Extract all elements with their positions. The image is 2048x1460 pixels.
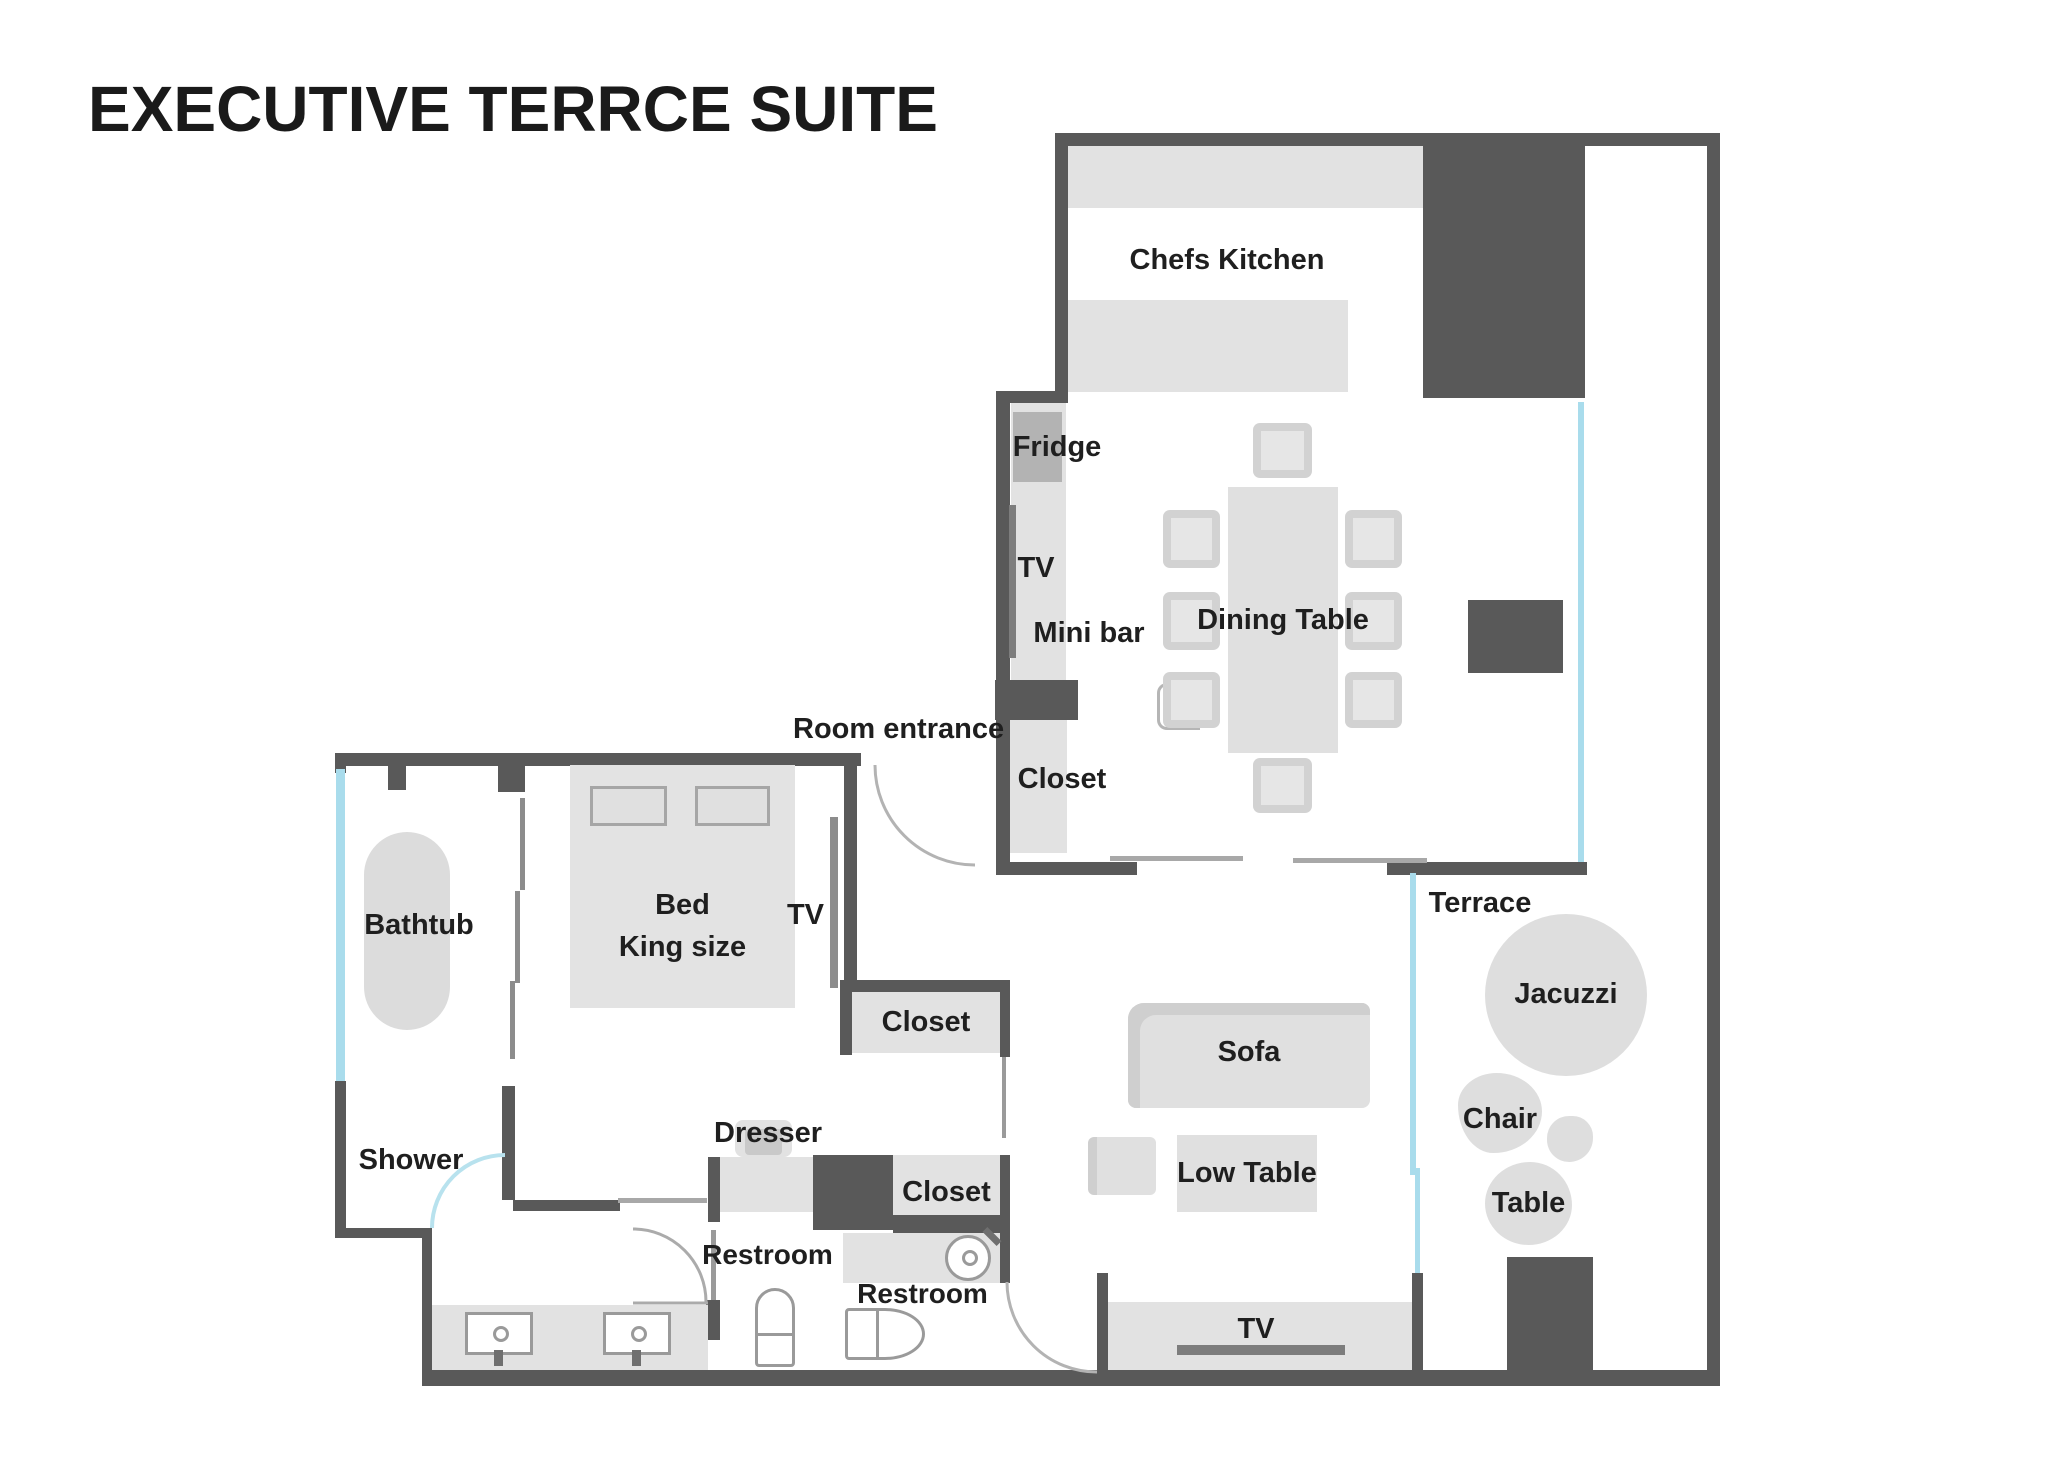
- shower-label: Shower: [355, 1145, 467, 1177]
- bed-label: Bed: [570, 890, 795, 922]
- room-entrance-label: Room entrance: [793, 714, 993, 746]
- low-table-label: Low Table: [1167, 1158, 1327, 1190]
- entry-closet-label: Closet: [1012, 764, 1112, 796]
- tv-bedroom-label: TV: [780, 900, 824, 932]
- chair-label: Chair: [1456, 1104, 1544, 1136]
- bathtub-label: Bathtub: [363, 910, 475, 942]
- table-label: Table: [1485, 1188, 1572, 1220]
- door-swing-arcs: [0, 0, 2048, 1460]
- bed-size-label: King size: [570, 932, 795, 964]
- bath-door-arc: [633, 1229, 708, 1303]
- tv-dining-label: TV: [1016, 553, 1056, 585]
- entrance-door-arc: [875, 765, 975, 865]
- dresser-label: Dresser: [714, 1118, 819, 1150]
- jacuzzi-label: Jacuzzi: [1485, 979, 1647, 1011]
- dining-table-label: Dining Table: [1183, 605, 1383, 637]
- hall-closet-label: Closet: [893, 1177, 1000, 1209]
- restroom-inner-label: Restroom: [700, 1240, 835, 1271]
- floor-plan: EXECUTIVE TERRCE SUITE: [0, 0, 2048, 1460]
- mini-bar-label: Mini bar: [1019, 618, 1159, 650]
- fridge-label: Fridge: [1005, 432, 1109, 464]
- kitchen-label: Chefs Kitchen: [1107, 245, 1347, 277]
- terrace-label: Terrace: [1420, 888, 1540, 920]
- sofa-label: Sofa: [1128, 1037, 1370, 1069]
- tv-living-label: TV: [1206, 1314, 1306, 1346]
- living-door-arc: [1007, 1282, 1097, 1372]
- bedroom-closet-label: Closet: [852, 1007, 1000, 1039]
- restroom-outer-label: Restroom: [855, 1279, 990, 1310]
